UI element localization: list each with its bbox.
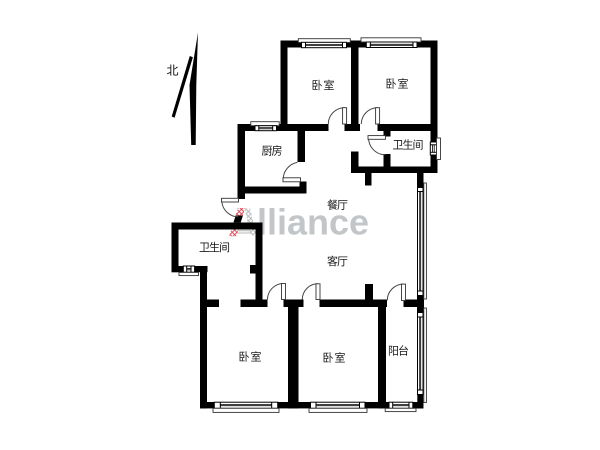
svg-text:厨房: 厨房	[262, 145, 283, 158]
svg-text:卧室: 卧室	[386, 77, 410, 91]
svg-text:卧室: 卧室	[312, 78, 336, 92]
svg-text:客厅: 客厅	[327, 254, 348, 268]
svg-text:卧室: 卧室	[239, 350, 263, 364]
svg-text:阳台: 阳台	[388, 344, 409, 358]
svg-text:lliance: lliance	[257, 202, 369, 243]
svg-text:卫生间: 卫生间	[393, 138, 424, 152]
svg-text:北: 北	[167, 64, 179, 78]
svg-text:餐厅: 餐厅	[327, 198, 348, 212]
svg-text:卧室: 卧室	[323, 351, 347, 365]
svg-text:卫生间: 卫生间	[199, 240, 230, 254]
